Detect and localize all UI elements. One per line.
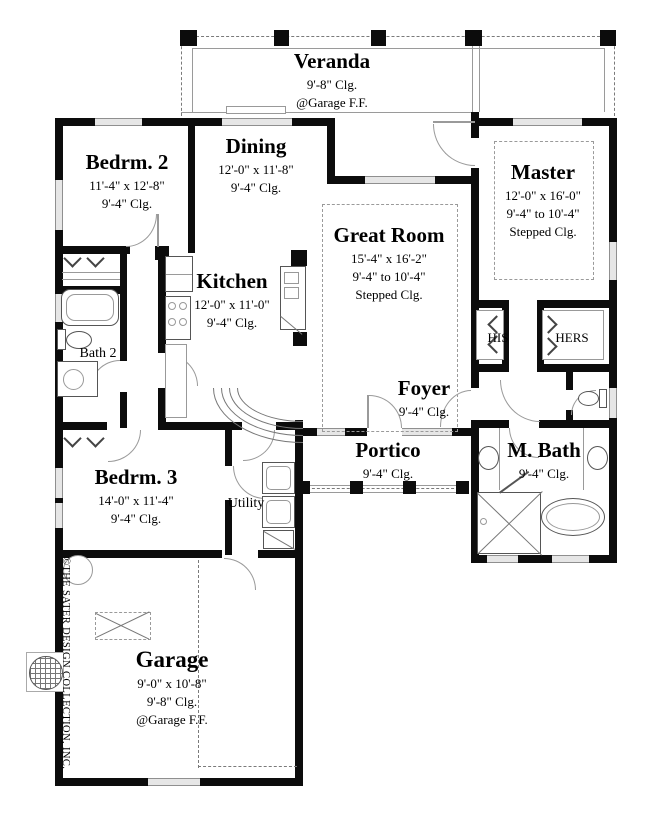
room-title: Garage	[136, 648, 209, 671]
room-label-foyer: Foyer 9'-4" Clg.	[398, 378, 450, 421]
vanity-line	[499, 428, 500, 490]
room-label-hers: HERS	[555, 331, 588, 344]
room-ceiling: 9'-8" Clg.	[294, 76, 370, 94]
floor-plan: Veranda 9'-8" Clg. @Garage F.F. Bedrm. 2…	[0, 0, 650, 816]
wall	[327, 118, 335, 184]
porch-line	[192, 48, 193, 112]
room-ceiling: 9'-4" Clg.	[86, 195, 169, 213]
room-ceiling: 9'-4" Clg.	[218, 179, 293, 197]
column	[600, 30, 616, 46]
burner	[168, 302, 176, 310]
room-ceiling: 9'-4" to 10'-4"	[334, 268, 445, 286]
room-label-bedroom2: Bedrm. 2 11'-4" x 12'-8" 9'-4" Clg.	[86, 152, 169, 213]
room-dims: 12'-0" x 11'-8"	[218, 161, 293, 179]
door-arc	[433, 124, 475, 166]
room-label-dining: Dining 12'-0" x 11'-8" 9'-4" Clg.	[218, 136, 293, 197]
room-dims: 12'-0" x 16'-0"	[505, 187, 581, 205]
room-title: Veranda	[294, 51, 370, 72]
room-ceiling: 9'-4" Clg.	[398, 403, 450, 421]
closet-rod-icon	[63, 429, 81, 447]
screen-line	[472, 46, 473, 112]
wall	[55, 422, 107, 430]
wall	[225, 422, 232, 466]
door-arc	[500, 380, 540, 422]
room-label-veranda: Veranda 9'-8" Clg. @Garage F.F.	[294, 51, 370, 112]
toilet	[578, 391, 599, 406]
door-arc	[126, 214, 157, 247]
room-ceiling: 9'-4" Clg.	[507, 465, 581, 483]
room-ceiling2: Stepped Clg.	[505, 223, 581, 241]
window	[55, 180, 63, 230]
window	[95, 118, 142, 126]
window	[365, 176, 435, 184]
room-title: Bedrm. 3	[95, 467, 178, 488]
colonnade-line	[297, 485, 469, 486]
porch-line	[604, 48, 605, 112]
room-ceiling: 9'-8" Clg.	[136, 693, 209, 711]
porch-line	[192, 48, 604, 49]
window	[609, 388, 617, 418]
column	[293, 332, 307, 346]
window	[609, 242, 617, 280]
room-label-great-room: Great Room 15'-4" x 16'-2" 9'-4" to 10'-…	[334, 225, 445, 304]
sink	[587, 446, 608, 470]
room-label-portico: Portico 9'-4" Clg.	[355, 440, 420, 483]
room-label-kitchen: Kitchen 12'-0" x 11'-0" 9'-4" Clg.	[194, 271, 269, 332]
column	[465, 30, 482, 46]
door-leaf	[433, 121, 475, 123]
sink	[284, 272, 299, 284]
roof-outline	[614, 36, 615, 116]
room-label-garage: Garage 9'-0" x 10'-8" 9'-8" Clg. @Garage…	[136, 648, 209, 729]
door-arc	[233, 466, 265, 499]
room-ceiling: 9'-4" to 10'-4"	[505, 205, 581, 223]
room-title: Portico	[355, 440, 420, 461]
tree-icon	[29, 656, 63, 690]
column	[274, 30, 289, 46]
closet-shelf	[62, 279, 120, 280]
wall	[537, 364, 617, 372]
room-title: Master	[505, 162, 581, 183]
wall	[539, 420, 617, 428]
door-leaf	[157, 214, 159, 247]
column	[291, 250, 307, 266]
wall	[120, 392, 127, 428]
room-title: M. Bath	[507, 440, 581, 461]
column	[297, 481, 310, 494]
window	[55, 503, 63, 528]
room-ceiling: 9'-4" Clg.	[355, 465, 420, 483]
burner	[168, 318, 176, 326]
step	[226, 106, 286, 114]
wall	[120, 246, 127, 361]
tub-inner	[546, 503, 600, 531]
room-label-utility: Utility	[228, 497, 265, 511]
window	[552, 555, 589, 563]
room-dims: 11'-4" x 12'-8"	[86, 177, 169, 195]
door-arc	[224, 558, 256, 590]
door-arc	[108, 430, 141, 462]
window	[222, 118, 292, 126]
sink	[63, 369, 84, 390]
roof-outline	[181, 36, 182, 116]
room-note: @Garage F.F.	[136, 711, 209, 729]
colonnade-line	[297, 488, 469, 489]
window	[513, 118, 582, 126]
copyright-text: ©THE SATER DESIGN COLLECTION, INC.	[60, 557, 71, 779]
room-label-bedroom3: Bedrm. 3 14'-0" x 11'-4" 9'-4" Clg.	[95, 467, 178, 528]
wall	[471, 420, 509, 428]
wall	[471, 364, 509, 372]
roof-outline	[181, 36, 615, 37]
counter	[165, 344, 187, 418]
sink	[478, 446, 499, 470]
wall	[544, 300, 617, 308]
room-dims: 9'-0" x 10'-8"	[136, 675, 209, 693]
column	[180, 30, 197, 46]
room-title: Kitchen	[194, 271, 269, 292]
room-dims: 12'-0" x 11'-0"	[194, 296, 269, 314]
wall	[188, 118, 195, 253]
washer-inner	[266, 466, 291, 490]
bathtub-inner	[66, 294, 114, 321]
screen-line	[479, 46, 480, 112]
room-label-mbath: M. Bath 9'-4" Clg.	[507, 440, 581, 483]
sink	[284, 287, 299, 299]
roof-section-line	[198, 766, 297, 767]
room-ceiling: 9'-4" Clg.	[194, 314, 269, 332]
shower-drain	[480, 518, 487, 525]
colonnade-line	[297, 492, 469, 493]
toilet	[57, 329, 66, 350]
room-label-bath2: Bath 2	[80, 347, 117, 361]
column	[350, 481, 363, 494]
burner	[179, 318, 187, 326]
porch-edge	[181, 112, 471, 113]
room-dims: 14'-0" x 11'-4"	[95, 492, 178, 510]
room-note: @Garage F.F.	[294, 94, 370, 112]
wall	[566, 372, 573, 390]
wall	[258, 550, 303, 558]
column	[371, 30, 386, 46]
window	[487, 555, 518, 563]
room-ceiling2: Stepped Clg.	[334, 286, 445, 304]
room-title: Bedrm. 2	[86, 152, 169, 173]
vanity-line	[583, 428, 584, 490]
closet-rod-icon	[86, 429, 104, 447]
column	[403, 481, 416, 494]
window	[55, 468, 63, 498]
column	[456, 481, 469, 494]
wall	[295, 420, 303, 786]
room-label-his: HIS	[488, 331, 509, 344]
room-title: Dining	[218, 136, 293, 157]
room-ceiling: 9'-4" Clg.	[95, 510, 178, 528]
room-title: Great Room	[334, 225, 445, 246]
room-label-master: Master 12'-0" x 16'-0" 9'-4" to 10'-4" S…	[505, 162, 581, 241]
burner	[179, 302, 187, 310]
fridge-line	[166, 274, 192, 275]
closet-shelf	[62, 272, 120, 273]
room-title: Foyer	[398, 378, 450, 399]
toilet	[599, 389, 607, 408]
garage-door	[148, 778, 200, 786]
dryer-inner	[266, 500, 291, 524]
wall	[609, 118, 617, 563]
room-dims: 15'-4" x 16'-2"	[334, 250, 445, 268]
